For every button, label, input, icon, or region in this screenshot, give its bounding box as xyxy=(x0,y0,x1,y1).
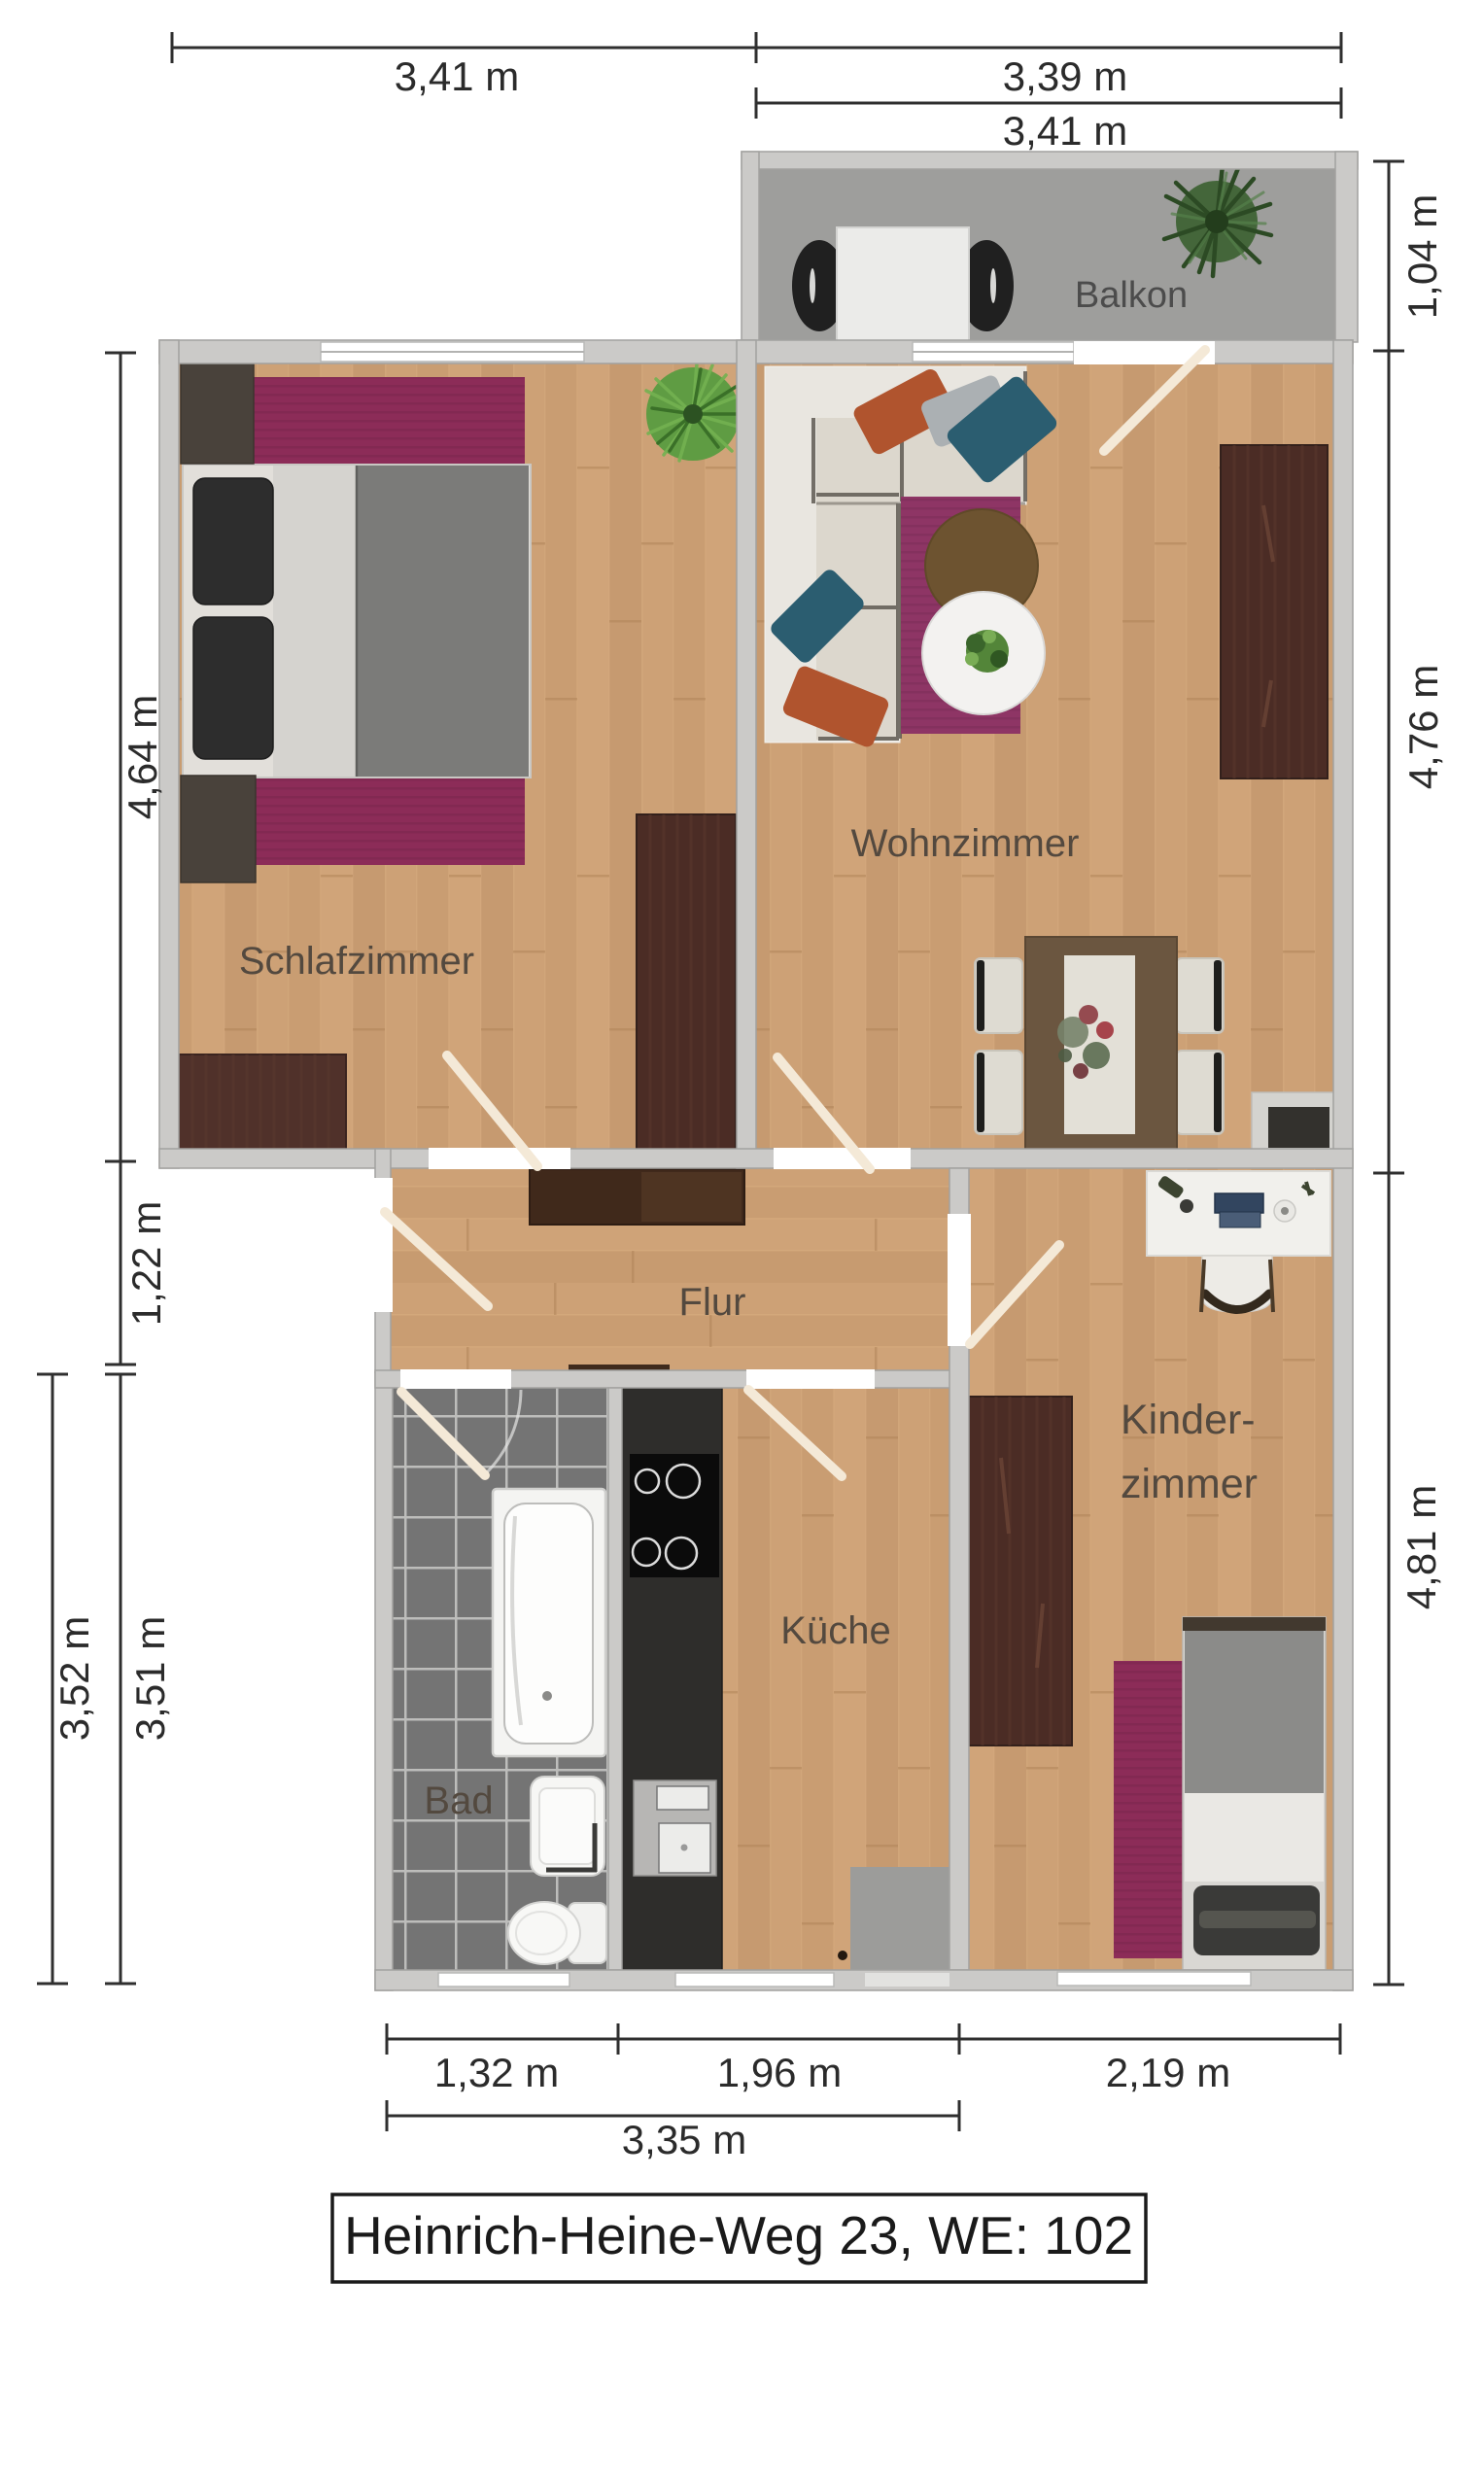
svg-text:3,41 m: 3,41 m xyxy=(1003,108,1127,154)
svg-text:Flur: Flur xyxy=(679,1281,746,1324)
svg-text:1,04 m: 1,04 m xyxy=(1399,194,1445,319)
svg-text:4,76 m: 4,76 m xyxy=(1400,665,1446,789)
svg-text:1,96 m: 1,96 m xyxy=(717,2050,842,2095)
svg-text:3,35 m: 3,35 m xyxy=(622,2117,746,2162)
svg-text:Wohnzimmer: Wohnzimmer xyxy=(851,822,1080,865)
svg-text:3,39 m: 3,39 m xyxy=(1003,53,1127,99)
svg-text:Küche: Küche xyxy=(780,1609,890,1652)
svg-text:3,52 m: 3,52 m xyxy=(52,1616,97,1741)
svg-text:3,51 m: 3,51 m xyxy=(127,1616,173,1741)
svg-text:4,64 m: 4,64 m xyxy=(120,695,165,819)
svg-text:3,41 m: 3,41 m xyxy=(395,53,519,99)
svg-text:Balkon: Balkon xyxy=(1075,275,1188,316)
svg-text:Kinder-: Kinder- xyxy=(1121,1397,1256,1443)
svg-text:Schlafzimmer: Schlafzimmer xyxy=(239,940,474,983)
svg-text:2,19 m: 2,19 m xyxy=(1106,2050,1230,2095)
svg-text:4,81 m: 4,81 m xyxy=(1398,1485,1444,1609)
svg-text:zimmer: zimmer xyxy=(1121,1461,1258,1507)
svg-text:1,32 m: 1,32 m xyxy=(434,2050,559,2095)
svg-text:Heinrich-Heine-Weg 23, WE: 102: Heinrich-Heine-Weg 23, WE: 102 xyxy=(344,2205,1133,2265)
svg-text:Bad: Bad xyxy=(424,1780,493,1822)
svg-text:1,22 m: 1,22 m xyxy=(123,1201,169,1326)
